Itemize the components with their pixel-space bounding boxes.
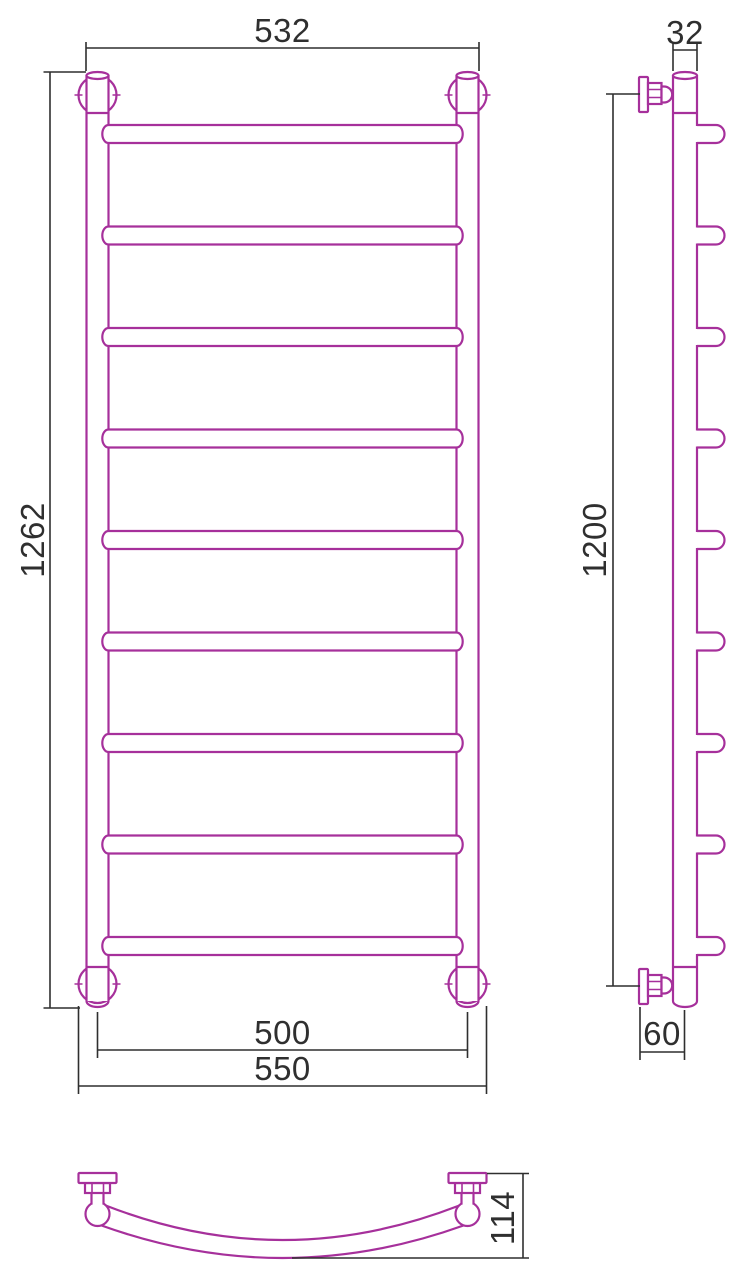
rung <box>102 633 462 651</box>
rung <box>102 531 462 549</box>
rung <box>102 937 462 955</box>
rung-stub <box>697 430 725 448</box>
dimension-label: 60 <box>643 1015 681 1052</box>
bracket-neck-mask <box>462 1193 474 1204</box>
bracket-nut <box>85 1183 110 1193</box>
bracket-flange <box>639 77 648 112</box>
stub-mask <box>695 735 699 751</box>
rung <box>102 227 462 245</box>
dim-front-height: 1262 <box>14 72 86 1008</box>
rung-stub <box>697 633 725 651</box>
rung <box>102 836 462 854</box>
dimension-label: 1200 <box>576 502 613 577</box>
rung <box>102 125 462 143</box>
bracket-flange <box>79 1173 117 1183</box>
plan-bracket-left <box>79 1173 117 1205</box>
side-rail-top-cap <box>673 72 697 79</box>
front-view <box>75 72 491 1007</box>
stub-mask <box>695 837 699 853</box>
plan-bracket-right <box>449 1173 487 1205</box>
dimension-label: 500 <box>254 1014 311 1051</box>
stub-mask <box>695 228 699 244</box>
wall-bracket-bottom <box>639 969 672 1004</box>
bracket-bolt <box>662 87 673 103</box>
side-view <box>639 72 725 1007</box>
side-rail-body <box>673 75 697 1001</box>
rung <box>102 734 462 752</box>
wall-bracket-top <box>639 77 672 112</box>
left-rail-top-cap <box>87 72 109 79</box>
side-rail-bottom-cap <box>673 1001 697 1007</box>
dimension-label: 114 <box>484 1191 521 1245</box>
dimension-label: 1262 <box>14 502 51 577</box>
dim-front-top-width: 532 <box>86 12 479 71</box>
rail-section-left <box>86 1202 110 1226</box>
dimension-label: 532 <box>254 12 311 49</box>
bracket-bolt <box>662 978 673 994</box>
curved-rung <box>102 1206 464 1258</box>
stub-mask <box>695 329 699 345</box>
technical-drawing: 532 1262 500 550 32 1200 <box>0 0 746 1280</box>
rung-stub <box>697 328 725 346</box>
stub-mask <box>695 938 699 954</box>
rungs <box>102 125 462 955</box>
dimension-label: 32 <box>666 14 704 51</box>
bracket-nut <box>648 975 662 996</box>
bracket-flange <box>449 1173 487 1183</box>
stub-mask <box>695 431 699 447</box>
dim-side-mount-height: 1200 <box>576 94 640 986</box>
rung <box>102 328 462 346</box>
rung-stub <box>697 734 725 752</box>
bottom-view <box>79 1173 487 1258</box>
rung <box>102 430 462 448</box>
rung-stubs <box>695 125 725 955</box>
stub-mask <box>695 532 699 548</box>
drawing-page: 532 1262 500 550 32 1200 <box>0 0 746 1280</box>
dimension-label: 550 <box>254 1050 311 1087</box>
rung-stub <box>697 125 725 143</box>
stub-mask <box>695 634 699 650</box>
rung-stub <box>697 531 725 549</box>
stub-mask <box>695 126 699 142</box>
right-rail-top-cap <box>457 72 479 79</box>
rung-stub <box>697 937 725 955</box>
dim-side-wall-offset: 60 <box>640 1007 685 1060</box>
dim-side-tube-width: 32 <box>666 14 704 71</box>
bracket-nut <box>648 83 662 104</box>
side-rail <box>673 72 697 1007</box>
rail-section-right <box>456 1202 480 1226</box>
rung-stub <box>697 227 725 245</box>
bracket-nut <box>455 1183 480 1193</box>
rung-stub <box>697 836 725 854</box>
bracket-flange <box>639 969 648 1004</box>
bracket-neck-mask <box>92 1193 104 1204</box>
